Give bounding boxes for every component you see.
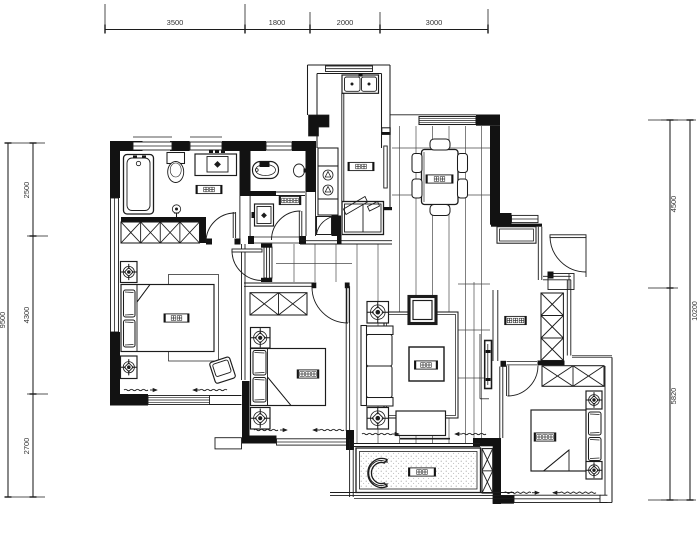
svg-text:10200: 10200 — [692, 301, 699, 321]
svg-text:4500: 4500 — [669, 196, 678, 213]
svg-text:2700: 2700 — [22, 438, 31, 455]
svg-text:2000: 2000 — [337, 18, 354, 27]
svg-text:3500: 3500 — [167, 18, 184, 27]
svg-text:3000: 3000 — [426, 18, 443, 27]
svg-text:9500: 9500 — [0, 312, 7, 329]
svg-text:2500: 2500 — [22, 182, 31, 199]
svg-text:5820: 5820 — [669, 388, 678, 405]
svg-text:4300: 4300 — [22, 307, 31, 324]
svg-text:1800: 1800 — [269, 18, 286, 27]
